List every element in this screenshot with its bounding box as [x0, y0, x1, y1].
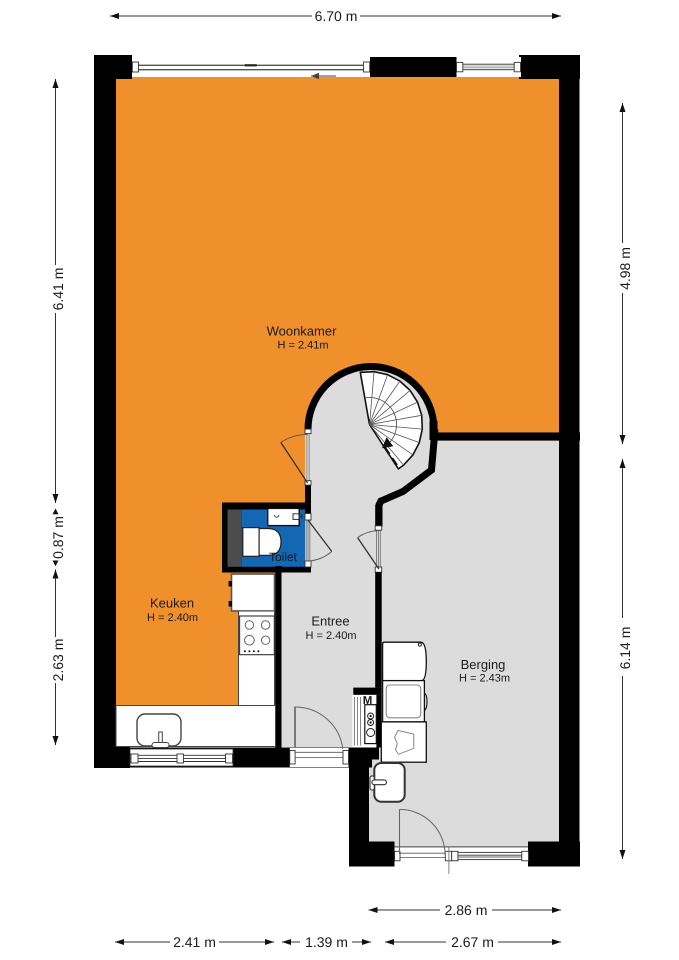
svg-text:4.98 m: 4.98 m	[617, 247, 633, 290]
svg-text:6.41 m: 6.41 m	[50, 268, 66, 311]
svg-text:1.39 m: 1.39 m	[305, 934, 348, 950]
svg-text:Entree: Entree	[311, 614, 349, 629]
svg-text:Berging: Berging	[461, 657, 506, 672]
svg-text:0.87 m: 0.87 m	[50, 516, 66, 559]
svg-text:2.63 m: 2.63 m	[50, 639, 66, 682]
svg-text:Keuken: Keuken	[150, 596, 194, 611]
svg-text:H = 2.40m: H = 2.40m	[305, 630, 356, 642]
svg-text:2.41 m: 2.41 m	[173, 934, 216, 950]
svg-text:Woonkamer: Woonkamer	[267, 324, 338, 339]
svg-text:6.70 m: 6.70 m	[315, 8, 358, 24]
svg-text:Toilet: Toilet	[269, 550, 298, 564]
svg-text:H = 2.41m: H = 2.41m	[277, 340, 328, 352]
svg-text:6.14 m: 6.14 m	[617, 627, 633, 670]
svg-text:2.86 m: 2.86 m	[445, 902, 488, 918]
svg-text:2.67 m: 2.67 m	[451, 934, 494, 950]
svg-text:H = 2.40m: H = 2.40m	[147, 612, 198, 624]
svg-text:M: M	[363, 695, 373, 707]
svg-text:H = 2.43m: H = 2.43m	[459, 673, 510, 685]
